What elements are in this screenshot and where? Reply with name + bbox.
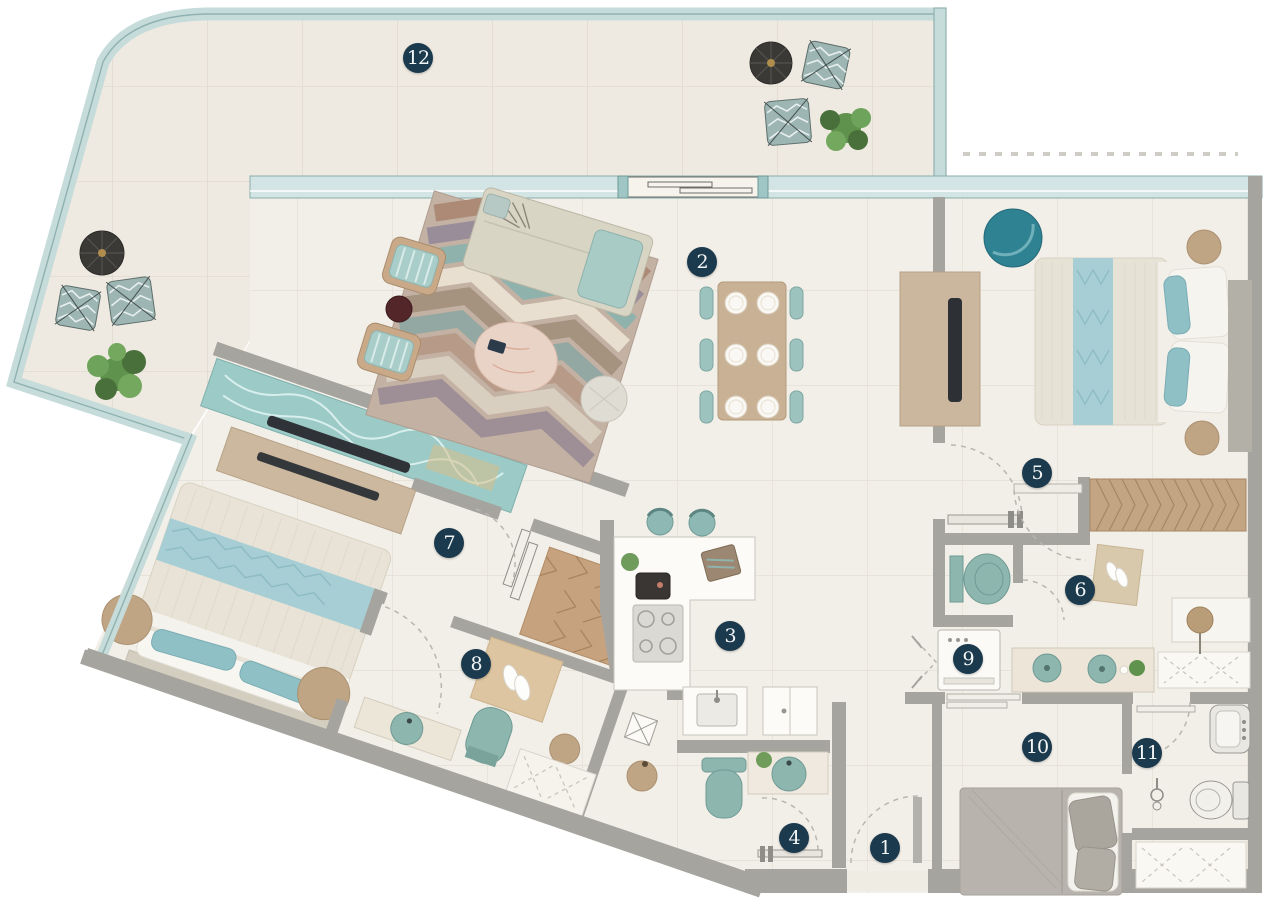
stool-button <box>1099 666 1105 672</box>
candle <box>1120 666 1128 674</box>
dressing-rug <box>1091 544 1143 605</box>
bar-stool <box>689 510 715 536</box>
plant-small <box>1129 660 1145 676</box>
toilet <box>1190 781 1249 819</box>
bedroom-10 <box>960 788 1122 895</box>
toilet <box>950 554 1010 604</box>
media-wall-console <box>900 272 980 426</box>
bathroom-a <box>950 554 1010 604</box>
room-marker-1[interactable]: 1 <box>870 833 900 863</box>
coffee-machine <box>636 573 670 599</box>
terrace-pouf <box>106 276 156 326</box>
wardrobe-chevron <box>1090 479 1246 531</box>
side-table <box>386 296 412 322</box>
room-marker-2[interactable]: 2 <box>687 247 717 277</box>
toilet <box>702 758 746 818</box>
terrace-pouf <box>55 285 101 331</box>
shower-tray <box>1136 842 1246 888</box>
side-table-tan <box>627 761 657 791</box>
sink <box>1210 705 1250 753</box>
plant-small <box>756 752 772 768</box>
room-marker-5[interactable]: 5 <box>1022 458 1052 488</box>
terrace-right-glass <box>934 8 946 178</box>
terrace-coffee-table <box>80 231 124 275</box>
bedside-pouf <box>1187 230 1221 264</box>
room-marker-6[interactable]: 6 <box>1065 575 1095 605</box>
room-marker-9[interactable]: 9 <box>953 644 983 674</box>
bottom-wall <box>745 869 847 893</box>
floor-plan: 123456789101112 <box>0 0 1265 900</box>
room-marker-4[interactable]: 4 <box>779 823 809 853</box>
bath-mat <box>1158 652 1250 688</box>
room-marker-12[interactable]: 12 <box>403 43 433 73</box>
floor-plan-drawing <box>0 0 1265 900</box>
room-marker-8[interactable]: 8 <box>461 649 491 679</box>
cooktop <box>633 605 683 662</box>
terrace-coffee-table <box>750 42 792 84</box>
room-marker-3[interactable]: 3 <box>715 621 745 651</box>
terrace-pouf <box>764 98 812 146</box>
room-marker-10[interactable]: 10 <box>1022 732 1052 762</box>
sink-counter <box>683 687 747 735</box>
accent-chair <box>984 209 1042 267</box>
stool-button <box>1044 665 1050 671</box>
dining-table <box>718 282 786 420</box>
sliding-door[interactable] <box>618 176 768 198</box>
bar-stool <box>647 509 673 535</box>
appliance <box>763 687 817 735</box>
bedside-pouf <box>1185 421 1219 455</box>
terrace-pouf <box>801 40 851 90</box>
room-marker-7[interactable]: 7 <box>434 528 464 558</box>
floor-pouf <box>581 376 627 422</box>
room-marker-11[interactable]: 11 <box>1132 738 1162 768</box>
plant-small <box>621 553 639 571</box>
